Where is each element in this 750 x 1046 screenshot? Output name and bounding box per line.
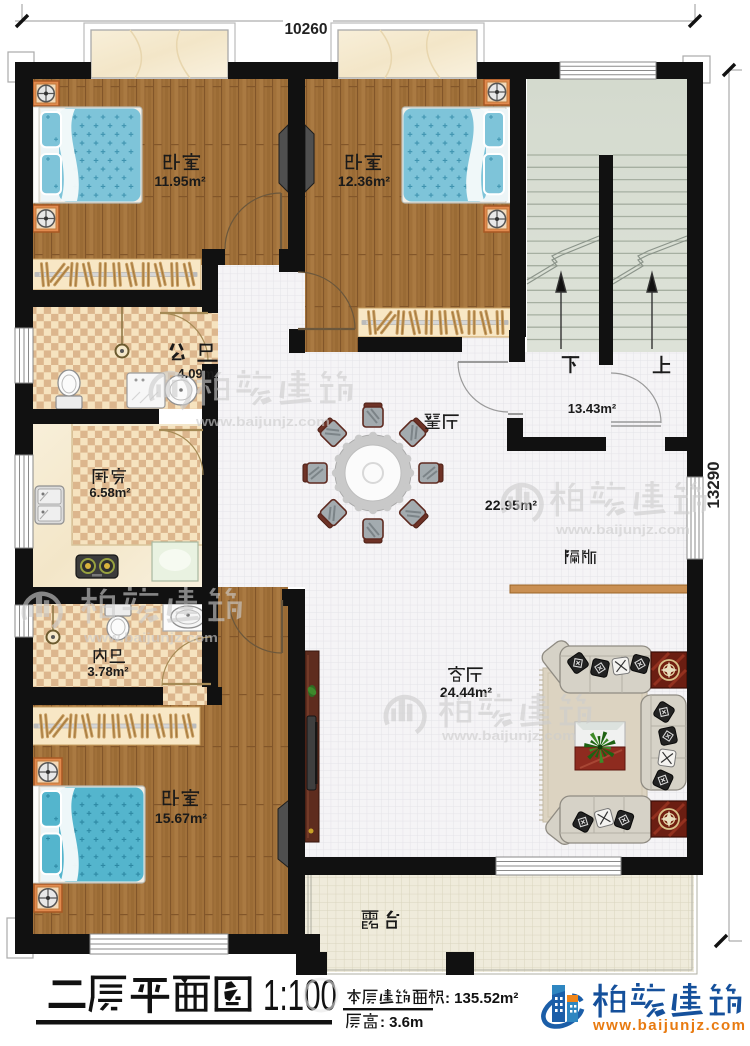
svg-text:13.43m²: 13.43m² — [568, 401, 617, 416]
svg-text:www.baijunjz.com: www.baijunjz.com — [441, 728, 576, 743]
svg-text:11.95m²: 11.95m² — [154, 173, 206, 189]
svg-text:www.baijunjz.com: www.baijunjz.com — [555, 522, 690, 537]
svg-text:3.78m²: 3.78m² — [87, 664, 129, 679]
svg-text:6.58m²: 6.58m² — [89, 485, 131, 500]
svg-text:www.baijunjz.com: www.baijunjz.com — [83, 630, 218, 645]
svg-text:www.baijunjz.com: www.baijunjz.com — [195, 414, 330, 429]
svg-text:24.44m²: 24.44m² — [440, 684, 492, 700]
svg-text:www.baijunjz.com: www.baijunjz.com — [592, 1017, 745, 1034]
svg-text:13290: 13290 — [704, 461, 723, 508]
svg-text:10260: 10260 — [284, 21, 327, 38]
svg-text:: 135.52m²: : 135.52m² — [445, 990, 518, 1007]
svg-text:: 3.6m: : 3.6m — [380, 1014, 423, 1031]
svg-text:12.36m²: 12.36m² — [338, 173, 390, 189]
svg-text:15.67m²: 15.67m² — [155, 810, 207, 826]
